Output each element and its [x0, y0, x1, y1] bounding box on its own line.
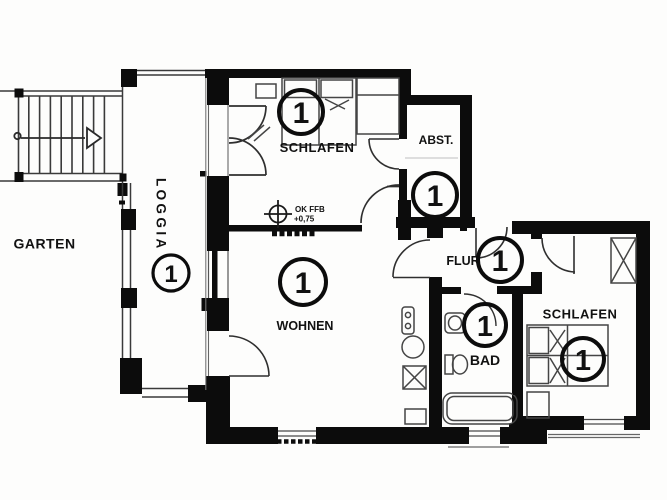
svg-text:1: 1	[295, 267, 312, 300]
svg-text:1: 1	[477, 311, 493, 343]
svg-text:1: 1	[575, 345, 591, 377]
svg-text:+0,75: +0,75	[294, 215, 315, 224]
svg-text:1: 1	[293, 97, 310, 130]
svg-text:SCHLAFEN: SCHLAFEN	[280, 140, 355, 155]
svg-text:GARTEN: GARTEN	[13, 236, 75, 252]
svg-text:1: 1	[427, 180, 444, 213]
svg-text:1: 1	[492, 245, 509, 278]
svg-text:1: 1	[164, 261, 177, 288]
svg-text:BAD: BAD	[470, 352, 500, 368]
svg-text:WOHNEN: WOHNEN	[277, 319, 334, 333]
svg-text:ABST.: ABST.	[419, 133, 454, 147]
svg-text:OK FFB: OK FFB	[295, 205, 325, 214]
svg-text:FLUR: FLUR	[446, 254, 479, 268]
svg-text:SCHLAFEN: SCHLAFEN	[543, 307, 618, 322]
svg-text:LOGGIA: LOGGIA	[154, 178, 169, 252]
